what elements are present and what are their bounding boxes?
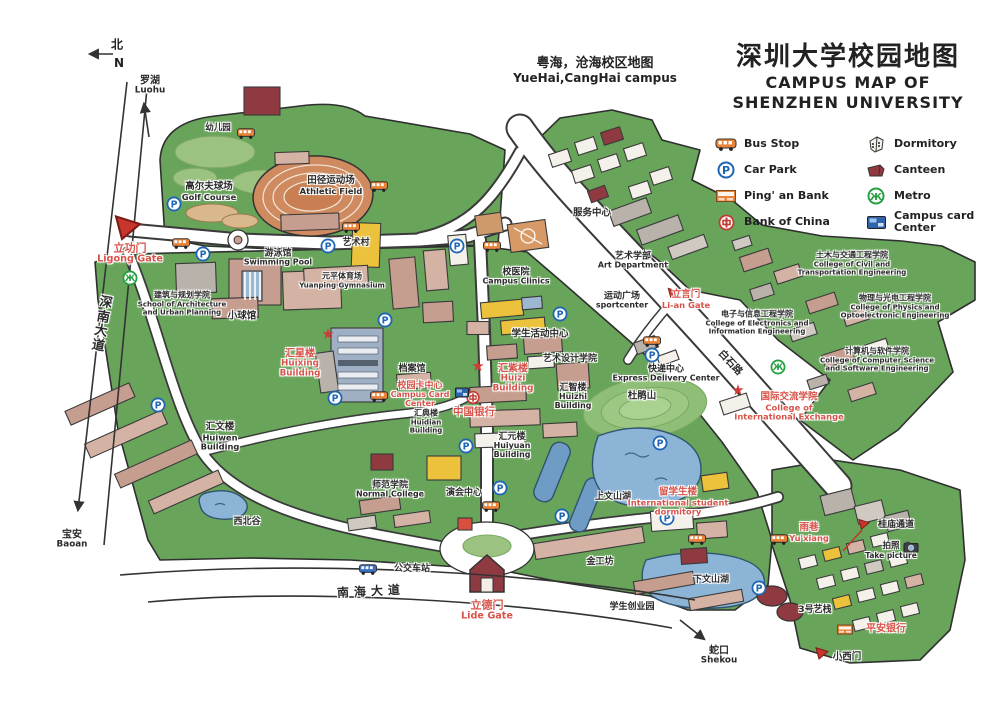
legend-label: Ping' an Bank (744, 190, 829, 202)
svg-text:Ж: Ж (870, 192, 883, 203)
legend-item-bus-stop: Bus Stop (715, 138, 865, 151)
legend-item-canteen: Canteen (865, 163, 995, 178)
svg-text:P: P (722, 164, 730, 177)
bank-of-china-icon (715, 214, 737, 231)
legend-item-dormitory: Dormitory (865, 135, 995, 153)
metro-icon: Ж (865, 187, 887, 205)
bus-icon (715, 138, 737, 151)
legend-item-bank-of-china: Bank of China (715, 214, 865, 231)
campus-card-icon (865, 216, 887, 229)
legend-label: Campus card Center (894, 210, 995, 233)
canteen-icon (865, 163, 887, 178)
legend-label: Bus Stop (744, 138, 799, 150)
legend: Bus Stop Dormitory P Car Park Canteen Pi… (715, 131, 995, 235)
car-park-icon: P (715, 161, 737, 179)
compass-north-letter: N (114, 56, 124, 70)
compass-north-chinese: 北 (111, 36, 123, 53)
pingan-bank-icon (715, 190, 737, 202)
campus-subtitle: 粤海，沧海校区地图 YueHai,CangHai campus (480, 52, 710, 85)
map-title: 深圳大学校园地图 CAMPUS MAP OF SHENZHEN UNIVERSI… (705, 36, 991, 113)
legend-label: Metro (894, 190, 931, 202)
legend-label: Car Park (744, 164, 797, 176)
legend-label: Dormitory (894, 138, 957, 150)
legend-item-metro: Ж Metro (865, 187, 995, 205)
map-title-english-line2: SHENZHEN UNIVERSITY (705, 93, 991, 113)
campus-map-page: 深圳大学校园地图 CAMPUS MAP OF SHENZHEN UNIVERSI… (0, 0, 1000, 706)
legend-item-car-park: P Car Park (715, 161, 865, 179)
map-title-english-line1: CAMPUS MAP OF (705, 73, 991, 93)
campus-subtitle-english: YueHai,CangHai campus (480, 71, 710, 85)
legend-label: Canteen (894, 164, 945, 176)
legend-label: Bank of China (744, 216, 830, 228)
map-title-chinese: 深圳大学校园地图 (705, 36, 991, 73)
legend-item-campus-card: Campus card Center (865, 210, 995, 233)
legend-item-pingan-bank: Ping' an Bank (715, 190, 865, 202)
dormitory-icon (865, 135, 887, 153)
campus-subtitle-chinese: 粤海，沧海校区地图 (480, 52, 710, 71)
